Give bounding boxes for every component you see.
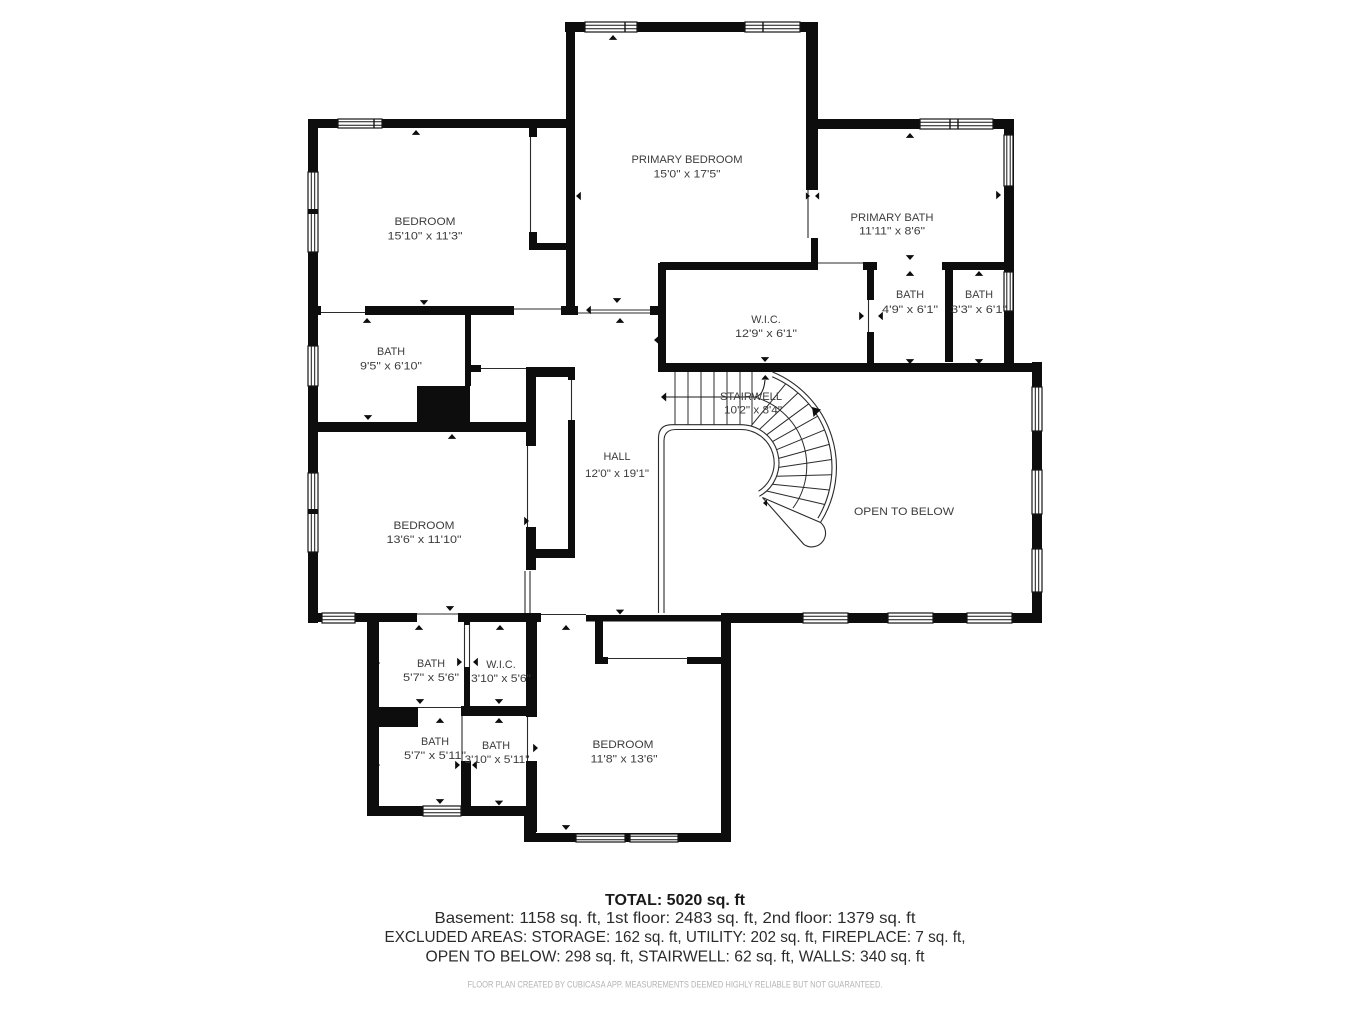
svg-text:3'10" x 5'11": 3'10" x 5'11" xyxy=(465,754,530,766)
svg-text:W.I.C.: W.I.C. xyxy=(486,659,515,671)
svg-text:BEDROOM: BEDROOM xyxy=(394,520,455,532)
svg-text:5'7" x 5'11": 5'7" x 5'11" xyxy=(404,750,466,762)
svg-text:12'0" x 19'1": 12'0" x 19'1" xyxy=(585,468,649,480)
svg-text:15'10" x 11'3": 15'10" x 11'3" xyxy=(388,231,463,243)
svg-text:OPEN TO BELOW: OPEN TO BELOW xyxy=(854,506,955,518)
svg-text:Basement: 1158 sq. ft, 1st flo: Basement: 1158 sq. ft, 1st floor: 2483 s… xyxy=(435,910,917,927)
svg-text:FLOOR PLAN CREATED BY CUBICASA: FLOOR PLAN CREATED BY CUBICASA APP. MEAS… xyxy=(468,980,883,991)
svg-text:BATH: BATH xyxy=(965,289,993,301)
svg-text:9'5" x 6'10": 9'5" x 6'10" xyxy=(360,361,422,373)
svg-text:BEDROOM: BEDROOM xyxy=(593,739,654,751)
svg-text:W.I.C.: W.I.C. xyxy=(751,314,780,326)
svg-text:15'0" x 17'5": 15'0" x 17'5" xyxy=(654,169,721,181)
svg-text:3'3" x 6'1": 3'3" x 6'1" xyxy=(951,304,1007,316)
svg-text:BATH: BATH xyxy=(421,736,449,748)
svg-text:PRIMARY BATH: PRIMARY BATH xyxy=(851,212,934,224)
svg-text:5'7" x 5'6": 5'7" x 5'6" xyxy=(403,672,459,684)
svg-text:PRIMARY BEDROOM: PRIMARY BEDROOM xyxy=(632,154,743,166)
svg-text:12'9" x 6'1": 12'9" x 6'1" xyxy=(735,328,797,340)
svg-text:11'8" x 13'6": 11'8" x 13'6" xyxy=(591,754,658,766)
svg-text:10'2" x 8'4": 10'2" x 8'4" xyxy=(724,405,782,417)
svg-text:BATH: BATH xyxy=(482,740,510,752)
svg-text:13'6" x 11'10": 13'6" x 11'10" xyxy=(387,534,462,546)
svg-text:OPEN TO BELOW: 298 sq. ft, STA: OPEN TO BELOW: 298 sq. ft, STAIRWELL: 62… xyxy=(426,949,926,966)
svg-text:EXCLUDED AREAS: STORAGE: 162 s: EXCLUDED AREAS: STORAGE: 162 sq. ft, UTI… xyxy=(385,929,966,946)
svg-text:11'11" x 8'6": 11'11" x 8'6" xyxy=(859,226,925,238)
svg-text:BATH: BATH xyxy=(417,658,445,670)
svg-text:TOTAL: 5020 sq. ft: TOTAL: 5020 sq. ft xyxy=(605,892,746,909)
svg-text:BATH: BATH xyxy=(896,289,924,301)
svg-text:4'9" x 6'1": 4'9" x 6'1" xyxy=(882,304,938,316)
svg-text:STAIRWELL: STAIRWELL xyxy=(720,391,782,403)
svg-text:3'10" x 5'6": 3'10" x 5'6" xyxy=(471,673,531,685)
svg-text:HALL: HALL xyxy=(603,451,630,463)
svg-text:BATH: BATH xyxy=(377,346,405,358)
svg-text:BEDROOM: BEDROOM xyxy=(395,216,456,228)
